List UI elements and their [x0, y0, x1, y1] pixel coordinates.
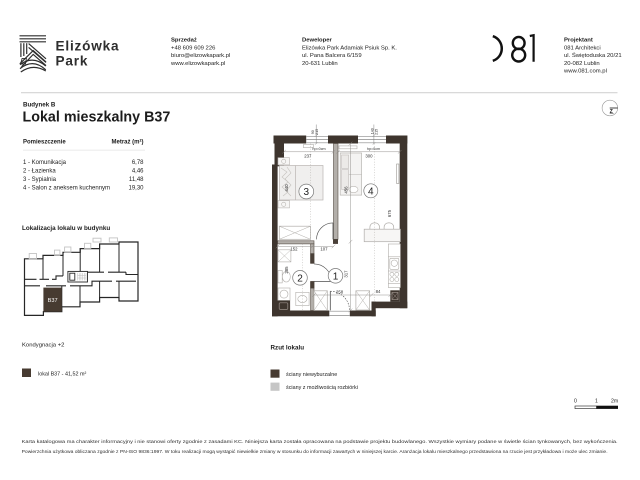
svg-text:456: 456 [344, 186, 349, 194]
svg-text:Lokalizacja lokalu w budynku: Lokalizacja lokalu w budynku [22, 225, 110, 232]
svg-text:3 - Sypialnia: 3 - Sypialnia [23, 177, 57, 183]
svg-text:Deweloper: Deweloper [302, 37, 332, 43]
svg-text:317: 317 [344, 270, 349, 278]
svg-text:Rzut lokalu: Rzut lokalu [271, 345, 305, 352]
svg-text:hp=0cm: hp=0cm [367, 147, 380, 151]
svg-text:ściany niewyburzalne: ściany niewyburzalne [286, 372, 337, 378]
svg-text:237: 237 [304, 153, 312, 158]
svg-text:107: 107 [320, 246, 328, 251]
svg-text:081 Architekci: 081 Architekci [564, 45, 601, 51]
svg-text:300: 300 [365, 153, 373, 158]
svg-text:215: 215 [374, 129, 378, 135]
svg-text:20-631 Lublin: 20-631 Lublin [302, 61, 338, 67]
svg-text:biuro@elizowkapark.pl: biuro@elizowkapark.pl [171, 53, 230, 59]
svg-text:258: 258 [336, 290, 344, 295]
svg-text:www.081.com.pl: www.081.com.pl [563, 69, 607, 75]
svg-text:Elizówka Park Adamiak Psiuk Sp: Elizówka Park Adamiak Psiuk Sp. K. [302, 45, 397, 51]
svg-text:Lokal mieszkalny B37: Lokal mieszkalny B37 [23, 110, 171, 126]
svg-text:2 - Łazienka: 2 - Łazienka [23, 169, 56, 175]
svg-text:2m: 2m [611, 399, 618, 405]
svg-text:0: 0 [574, 399, 577, 405]
svg-text:20-082 Lublin: 20-082 Lublin [564, 61, 600, 67]
svg-text:3: 3 [304, 187, 310, 198]
svg-text:Sprzedaż: Sprzedaż [171, 37, 197, 43]
svg-text:Projektant: Projektant [564, 37, 593, 43]
svg-text:lokal B37 - 41,52 m²: lokal B37 - 41,52 m² [38, 372, 86, 378]
svg-text:Park: Park [56, 53, 89, 68]
svg-text:152: 152 [290, 246, 298, 251]
svg-text:4: 4 [368, 186, 374, 197]
svg-text:Pomieszczenie: Pomieszczenie [23, 140, 66, 146]
svg-text:1: 1 [595, 399, 598, 405]
svg-text:Powierzchnia użytkowa obliczan: Powierzchnia użytkowa obliczana zgodnie … [22, 449, 608, 454]
svg-text:4,46: 4,46 [132, 169, 144, 175]
svg-text:1 - Komunikacja: 1 - Komunikacja [23, 160, 67, 166]
svg-text:675: 675 [387, 209, 392, 217]
svg-text:Elizówka: Elizówka [56, 38, 120, 53]
svg-text:ul. Świętoduska 20/21: ul. Świętoduska 20/21 [564, 51, 622, 59]
svg-text:Metraż (m²): Metraż (m²) [111, 139, 143, 146]
svg-text:19,30: 19,30 [128, 186, 144, 192]
svg-text:2: 2 [297, 273, 303, 284]
svg-text:B37: B37 [48, 298, 58, 304]
svg-text:6,78: 6,78 [132, 160, 144, 166]
svg-text:11,48: 11,48 [129, 177, 144, 183]
svg-text:+48 609 609 226: +48 609 609 226 [171, 45, 216, 51]
svg-text:84: 84 [376, 289, 381, 294]
svg-text:Kondygnacja +2: Kondygnacja +2 [22, 343, 64, 349]
svg-text:215: 215 [315, 129, 319, 135]
svg-text:hp=0cm: hp=0cm [312, 147, 325, 151]
svg-text:www.elizowkapark.pl: www.elizowkapark.pl [170, 61, 225, 67]
svg-text:285: 285 [284, 266, 289, 274]
svg-text:Karta katalogowa ma charakter: Karta katalogowa ma charakter informacyj… [22, 439, 618, 444]
svg-text:Z: Z [610, 109, 614, 115]
svg-text:1: 1 [333, 271, 339, 282]
svg-text:ściany z możliwością rozbiórki: ściany z możliwością rozbiórki [286, 385, 358, 391]
svg-text:ul. Pana Balcera 6/159: ul. Pana Balcera 6/159 [302, 53, 362, 59]
svg-text:4 - Salon z aneksem kuchennym: 4 - Salon z aneksem kuchennym [23, 186, 110, 192]
svg-text:440: 440 [284, 184, 289, 192]
svg-text:Budynek B: Budynek B [23, 102, 56, 109]
